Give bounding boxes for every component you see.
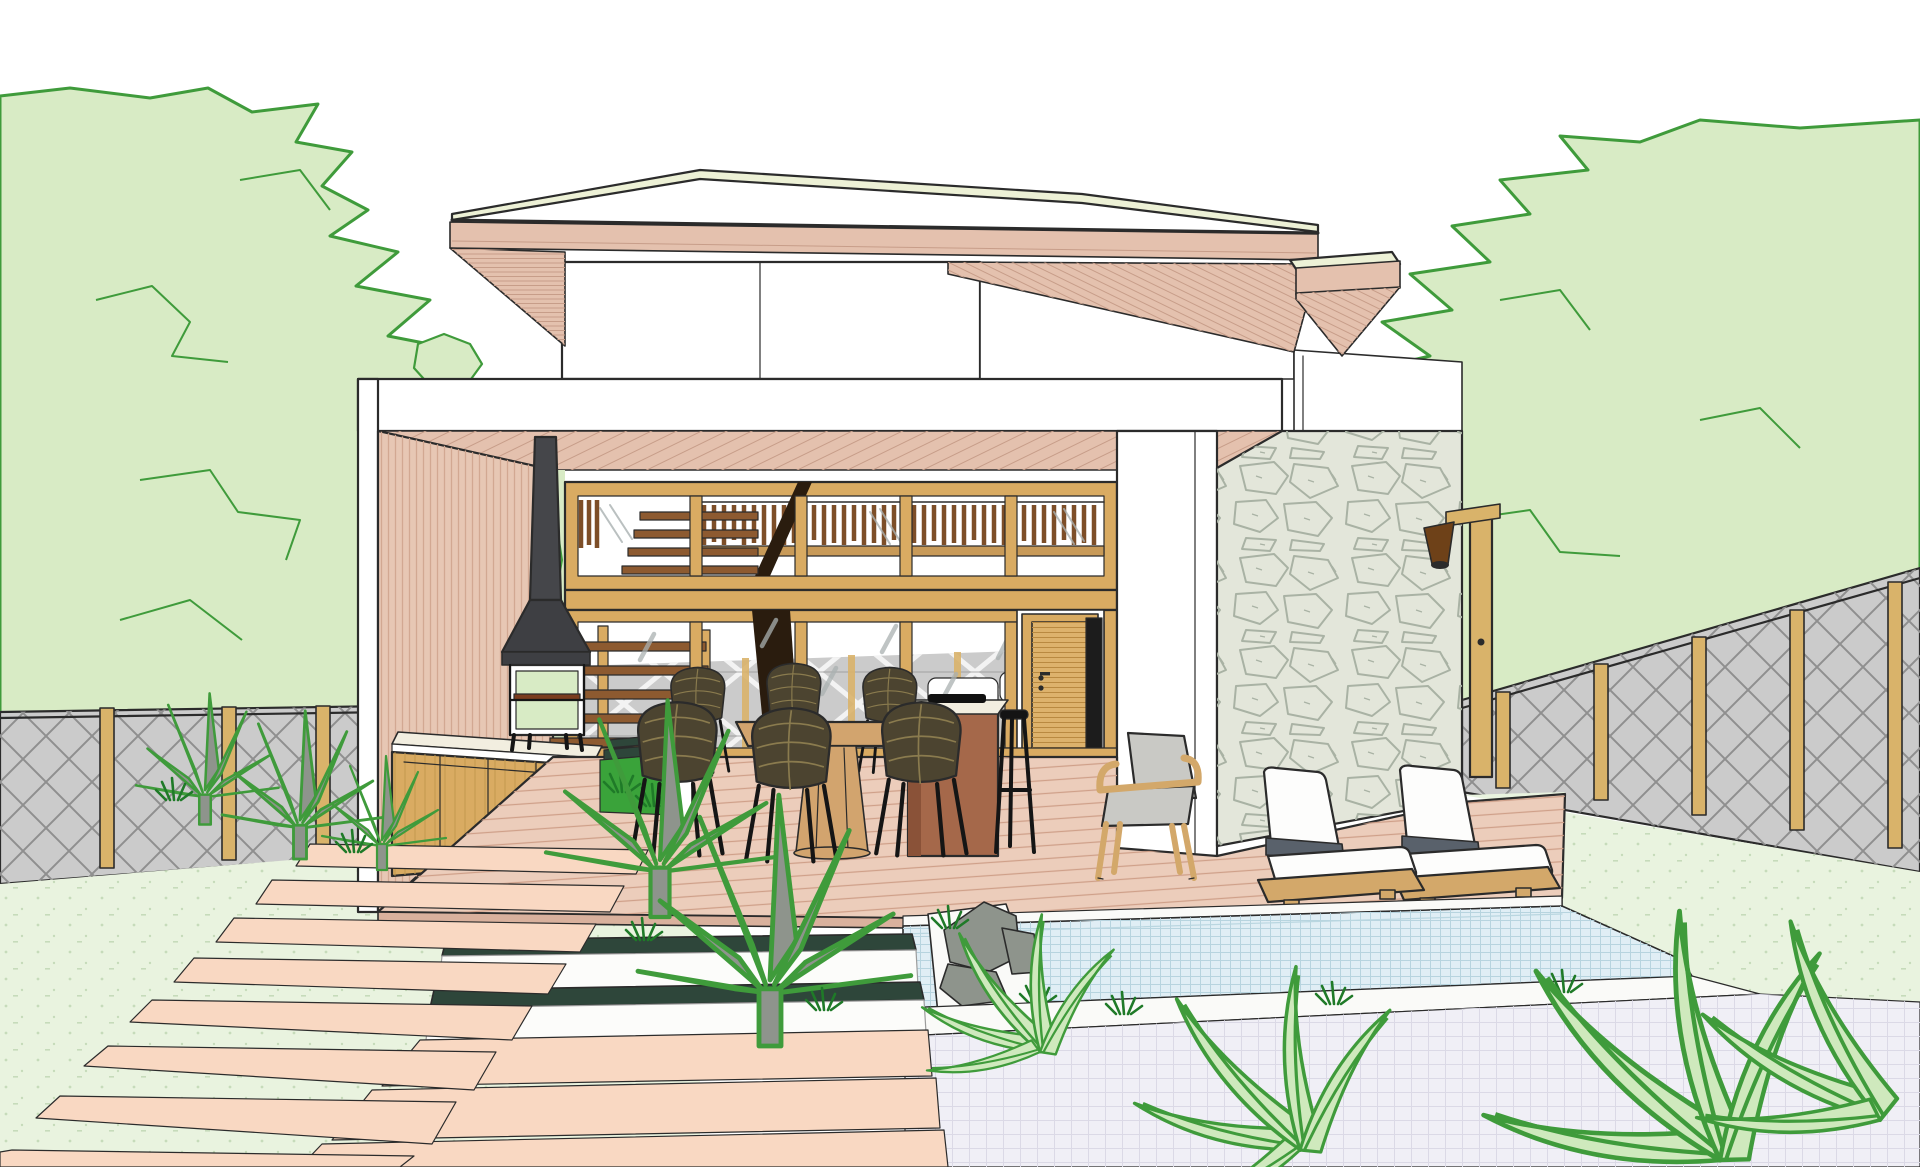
house-illustration: Large tree mass on the left Large tree m… — [0, 0, 1920, 1167]
cooktop — [928, 694, 986, 703]
shower-head — [1431, 561, 1449, 569]
illustration-canvas: Large tree mass on the left Large tree m… — [0, 0, 1920, 1167]
door-handle — [1040, 672, 1050, 675]
glazed-wall: Timber-framed glazed facade with balcony… — [550, 482, 1117, 757]
shower-valve — [1478, 639, 1485, 646]
refrigerator — [1086, 618, 1102, 750]
